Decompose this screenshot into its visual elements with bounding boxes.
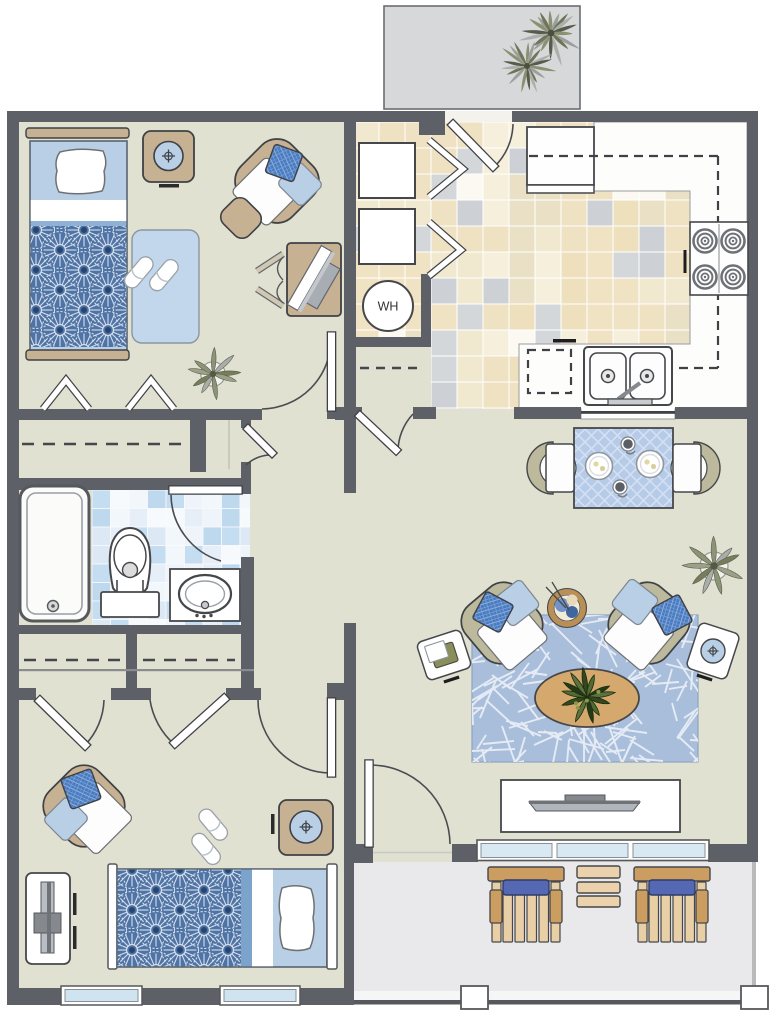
svg-text:WH: WH: [378, 300, 399, 314]
